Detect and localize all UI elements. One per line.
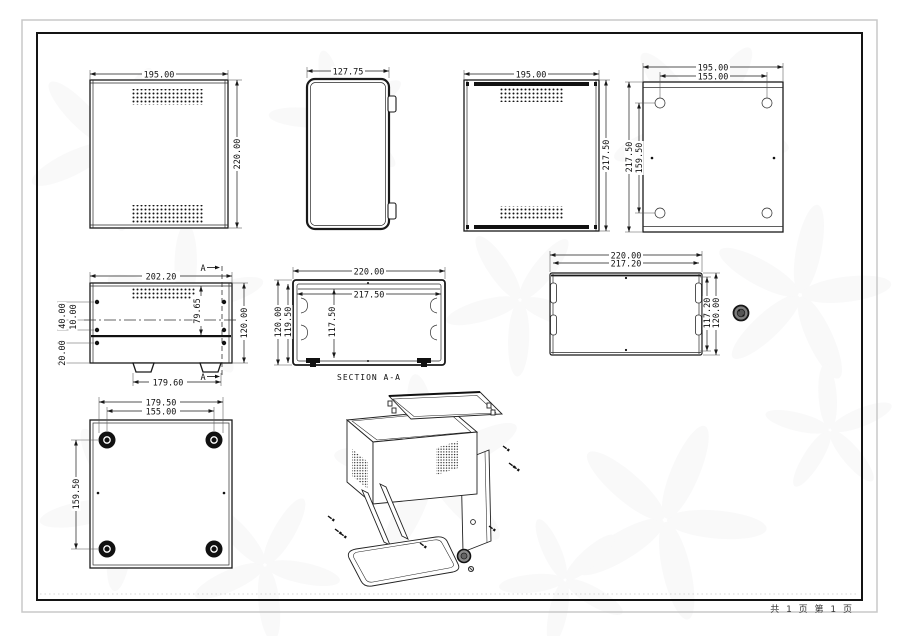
dim-text: 120.00 xyxy=(274,307,284,338)
dim-text: 119.50 xyxy=(284,307,294,338)
dim-front-left-chain: 40.00 10.00 20.00 xyxy=(57,302,94,367)
exploded-bottom-panel xyxy=(348,537,459,586)
foot xyxy=(306,358,320,363)
dim-text: 220.00 xyxy=(233,139,243,170)
dim-vent-width: 195.00 xyxy=(464,70,599,81)
dim-cover-inner-width: 217.20 xyxy=(553,259,699,270)
dim-text: 155.00 xyxy=(698,73,729,83)
vent-grid-top xyxy=(499,88,563,102)
dim-text: 195.00 xyxy=(516,71,547,81)
section-marker-bottom: A xyxy=(200,373,220,383)
dim-text: 120.00 xyxy=(240,308,250,339)
rubber-foot xyxy=(206,541,223,558)
screw xyxy=(95,341,99,345)
mount-tab-top xyxy=(388,96,396,112)
dim-text: 220.00 xyxy=(354,268,385,278)
section-label: SECTION A-A xyxy=(337,373,401,382)
vent-grid-bottom xyxy=(499,206,563,220)
view-rear-panel: 195.00 220.00 xyxy=(90,70,243,229)
foot xyxy=(133,363,154,372)
dim-text: 217.20 xyxy=(611,260,642,270)
section-marker-top: A xyxy=(200,264,220,274)
foot xyxy=(200,363,221,372)
view-cover: 220.00 217.20 117.20 120.00 xyxy=(550,251,749,356)
vent-grid xyxy=(132,288,196,299)
foot xyxy=(417,358,431,363)
clip-slot xyxy=(551,283,557,303)
dim-text: 217.50 xyxy=(602,140,612,171)
pilot-hole xyxy=(773,157,776,160)
view-exploded xyxy=(328,392,519,586)
clip-slot xyxy=(551,315,557,335)
dim-front-foot-span: 179.60 xyxy=(133,373,221,389)
view-side-cover: 127.75 xyxy=(307,67,396,230)
dim-text: 120.00 xyxy=(712,298,722,329)
page-footer: 共 1 页 第 1 页 xyxy=(770,602,854,615)
rubber-foot xyxy=(206,432,223,449)
exploded-knob xyxy=(458,550,474,572)
screw xyxy=(222,300,226,304)
view-bottom: 179.50 155.00 159.50 xyxy=(71,397,232,568)
screw xyxy=(95,300,99,304)
svg-text:A: A xyxy=(200,264,205,274)
dim-text: 79.65 xyxy=(193,298,203,324)
dim-text: 117.50 xyxy=(328,307,338,338)
mount-tab-bottom xyxy=(388,203,396,219)
clip-slot xyxy=(696,315,702,335)
dim-text: 217.50 xyxy=(625,142,635,173)
dim-text: 20.00 xyxy=(58,340,68,366)
dim-text: 159.50 xyxy=(72,479,82,510)
dim-text: 155.00 xyxy=(146,408,177,418)
dim-text: 40.00 xyxy=(58,303,68,329)
pilot-hole xyxy=(223,492,226,495)
dim-text: 195.00 xyxy=(144,71,175,81)
dim-text: 127.75 xyxy=(333,68,364,78)
rubber-foot xyxy=(99,432,116,449)
screw xyxy=(222,341,226,345)
dim-text: 217.50 xyxy=(354,291,385,301)
knob-detail xyxy=(734,306,749,321)
screw xyxy=(222,328,226,332)
dim-vent-height: 217.50 xyxy=(600,80,612,231)
dim-section-outer-width: 220.00 xyxy=(293,267,445,280)
dim-rear-height: 220.00 xyxy=(229,80,243,228)
view-section: 220.00 217.50 117.50 120.00 xyxy=(274,267,446,383)
screw xyxy=(95,328,99,332)
dim-text: 159.50 xyxy=(635,143,645,174)
vent-grid-bottom xyxy=(131,205,203,224)
pilot-hole xyxy=(651,157,654,160)
dim-text: 179.60 xyxy=(153,379,184,389)
rubber-foot xyxy=(99,541,116,558)
clip-slot xyxy=(696,283,702,303)
vent-grid-top xyxy=(131,89,203,105)
view-vent-panel: 195.00 217.50 xyxy=(464,70,612,232)
drawing-canvas: 195.00 220.00 127.75 xyxy=(0,0,900,636)
svg-text:A: A xyxy=(200,373,205,383)
view-mount-panel: 195.00 155.00 217.50 159.50 xyxy=(625,63,784,233)
dim-rear-width: 195.00 xyxy=(90,70,228,81)
dim-text: 10.00 xyxy=(69,304,79,330)
dim-text: 202.20 xyxy=(146,273,177,283)
drawing-sheet: 195.00 220.00 127.75 xyxy=(0,0,900,636)
pilot-hole xyxy=(97,492,100,495)
view-front: A A 202.20 120.00 79.65 xyxy=(57,264,250,389)
